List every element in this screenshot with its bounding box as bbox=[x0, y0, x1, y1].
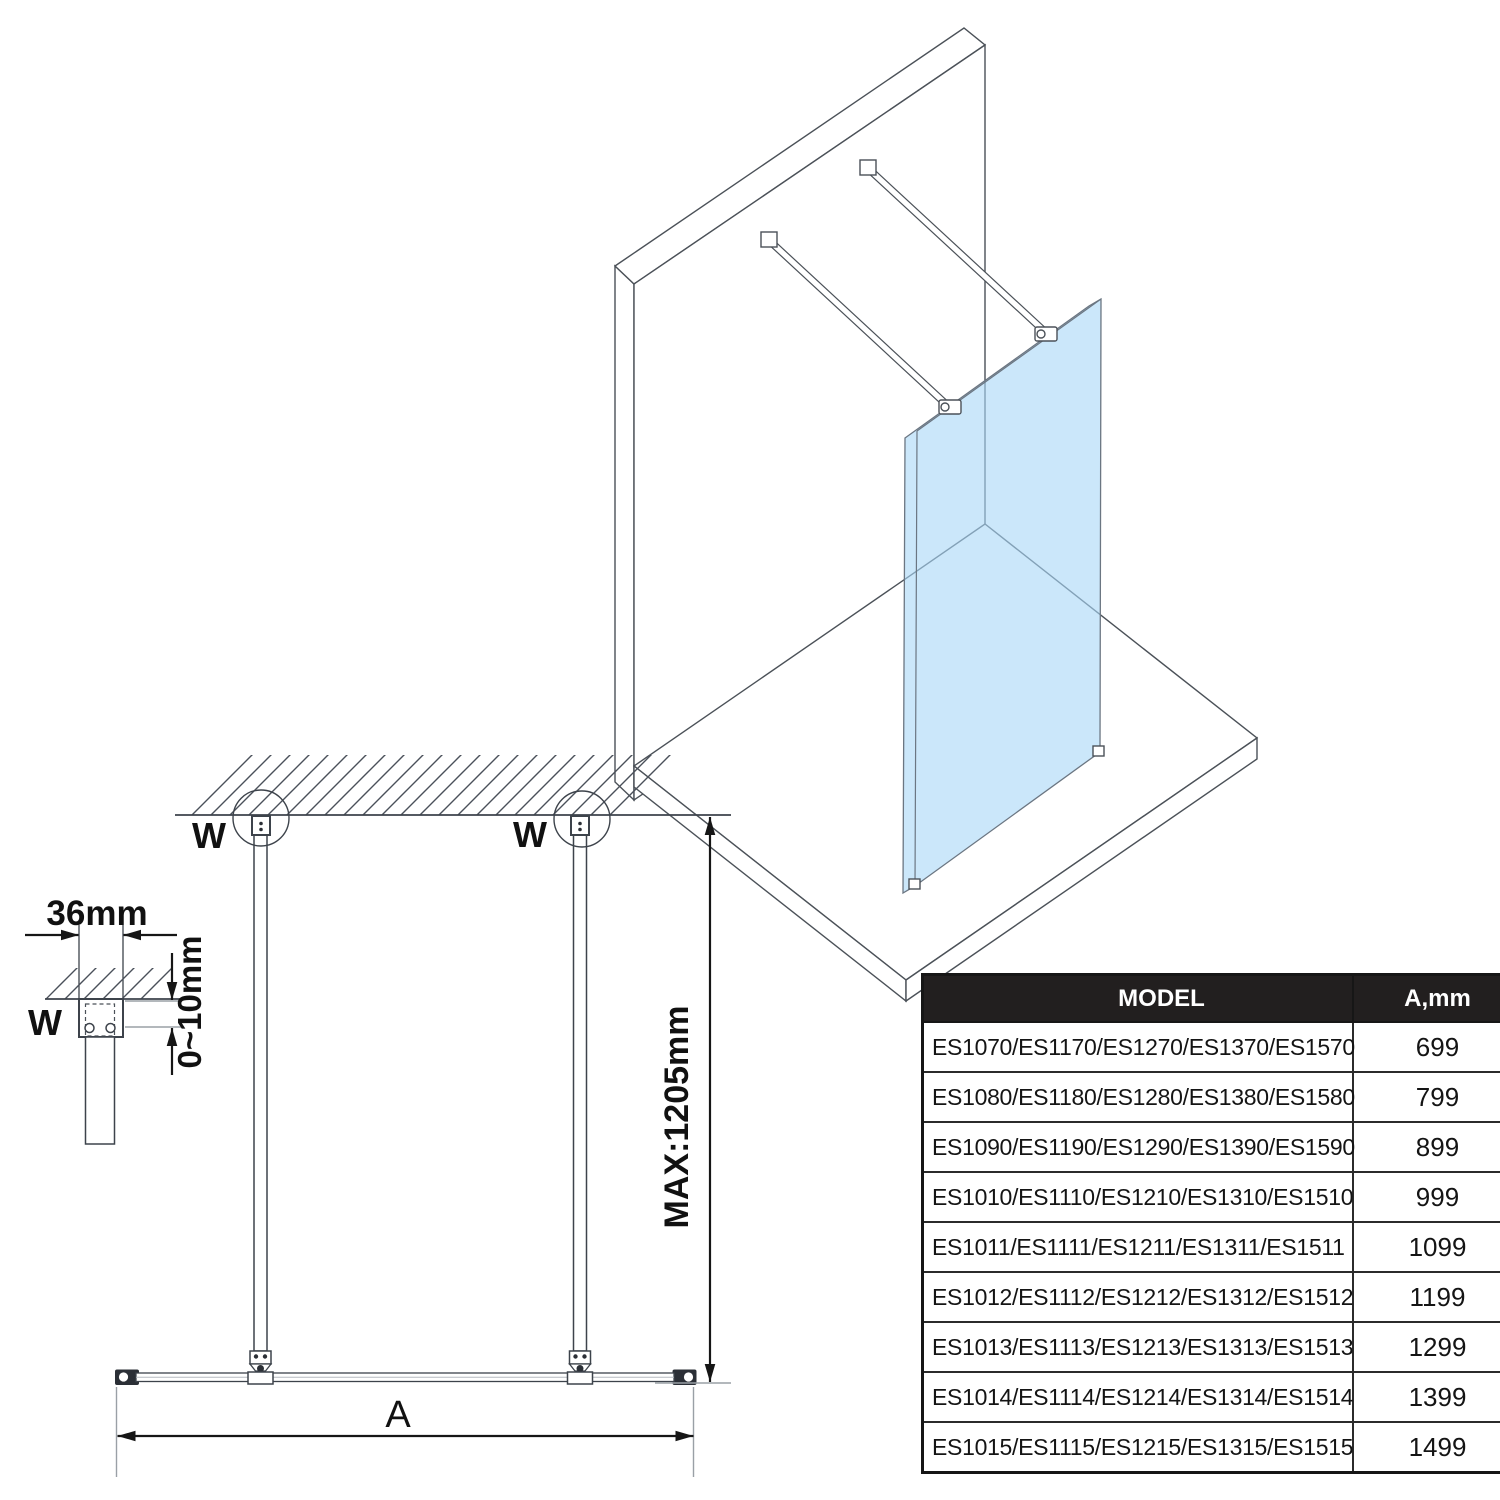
wall-mount-1 bbox=[761, 232, 777, 247]
detail-bracket bbox=[79, 999, 123, 1037]
table-row: ES1012/ES1112/ES1212/ES1312/ES15121199 bbox=[923, 1272, 1500, 1322]
model-cell: ES1010/ES1110/ES1210/ES1310/ES1510 bbox=[923, 1172, 1354, 1222]
shower-screen-spec-sheet: W W bbox=[0, 0, 1500, 1500]
ceiling-bracket bbox=[252, 816, 270, 835]
a-mm-cell: 1499 bbox=[1353, 1422, 1500, 1473]
a-mm-cell: 899 bbox=[1353, 1122, 1500, 1172]
table-row: ES1070/ES1170/ES1270/ES1370/ES1570699 bbox=[923, 1022, 1500, 1072]
connector-body bbox=[570, 1351, 591, 1364]
bracket-screw bbox=[259, 822, 263, 826]
model-cell: ES1013/ES1113/ES1213/ES1313/ES1513 bbox=[923, 1322, 1354, 1372]
model-cell: ES1070/ES1170/ES1270/ES1370/ES1570 bbox=[923, 1022, 1354, 1072]
model-cell: ES1011/ES1111/ES1211/ES1311/ES1511 bbox=[923, 1222, 1354, 1272]
detail-view: 36mm W 0~10mm bbox=[25, 894, 208, 1144]
model-cell: ES1015/ES1115/ES1215/ES1315/ES1515 bbox=[923, 1422, 1354, 1473]
post-bar bbox=[254, 835, 267, 1351]
support-post-left bbox=[252, 816, 270, 1351]
rail-clamp bbox=[568, 1372, 593, 1384]
end-cap-hole-right bbox=[684, 1372, 693, 1381]
detail-screw bbox=[106, 1024, 115, 1033]
glass-clamp-1-knob bbox=[941, 403, 949, 411]
post-connector-left bbox=[248, 1351, 273, 1384]
table-row: ES1013/ES1113/ES1213/ES1313/ES15131299 bbox=[923, 1322, 1500, 1372]
table-row: ES1014/ES1114/ES1214/ES1314/ES15141399 bbox=[923, 1372, 1500, 1422]
table-row: ES1015/ES1115/ES1215/ES1315/ES15151499 bbox=[923, 1422, 1500, 1473]
connector-screw bbox=[573, 1354, 577, 1358]
a-mm-cell: 799 bbox=[1353, 1072, 1500, 1122]
profile-width-label: 36mm bbox=[46, 894, 147, 933]
connector-screw bbox=[263, 1354, 267, 1358]
max-height-dimension: MAX:1205mm bbox=[655, 817, 731, 1383]
spec-table: MODEL A,mm ES1070/ES1170/ES1270/ES1370/E… bbox=[921, 973, 1500, 1474]
table-row: ES1010/ES1110/ES1210/ES1310/ES1510999 bbox=[923, 1172, 1500, 1222]
a-mm-cell: 1299 bbox=[1353, 1322, 1500, 1372]
isometric-view bbox=[615, 28, 1257, 1001]
gap-dimension: 0~10mm bbox=[125, 935, 208, 1075]
ceiling-bracket bbox=[571, 816, 589, 835]
post-bar bbox=[574, 835, 587, 1351]
detail-post bbox=[86, 1037, 115, 1144]
bottom-rail bbox=[115, 1370, 697, 1386]
width-label: A bbox=[385, 1394, 411, 1436]
glass-clamp-2-knob bbox=[1037, 330, 1045, 338]
wall-marker-right: W bbox=[513, 814, 547, 855]
model-cell: ES1080/ES1180/ES1280/ES1380/ES1580 bbox=[923, 1072, 1354, 1122]
bracket-screw bbox=[578, 822, 582, 826]
wall-left-face bbox=[615, 266, 634, 800]
end-cap-hole-left bbox=[119, 1372, 128, 1381]
wall-marker-detail: W bbox=[28, 1002, 62, 1043]
detail-hatch bbox=[45, 968, 180, 999]
width-dimension: A bbox=[117, 1387, 694, 1477]
table-row: ES1090/ES1190/ES1290/ES1390/ES1590899 bbox=[923, 1122, 1500, 1172]
a-mm-cell: 1199 bbox=[1353, 1272, 1500, 1322]
connector-body bbox=[250, 1351, 271, 1364]
support-post-right bbox=[571, 816, 589, 1351]
rail-clamp bbox=[248, 1372, 273, 1384]
a-mm-cell: 1399 bbox=[1353, 1372, 1500, 1422]
post-connector-right bbox=[568, 1351, 593, 1384]
gap-label: 0~10mm bbox=[171, 935, 208, 1068]
table-header-model: MODEL bbox=[923, 975, 1354, 1023]
ceiling-hatch bbox=[175, 755, 672, 815]
bracket-screw bbox=[259, 828, 263, 832]
connector-pivot bbox=[257, 1365, 264, 1372]
wall-marker-left: W bbox=[192, 815, 226, 856]
table-header-a-mm: A,mm bbox=[1353, 975, 1500, 1023]
a-mm-cell: 999 bbox=[1353, 1172, 1500, 1222]
connector-screw bbox=[582, 1354, 586, 1358]
model-cell: ES1090/ES1190/ES1290/ES1390/ES1590 bbox=[923, 1122, 1354, 1172]
a-mm-cell: 1099 bbox=[1353, 1222, 1500, 1272]
model-cell: ES1012/ES1112/ES1212/ES1312/ES1512 bbox=[923, 1272, 1354, 1322]
connector-screw bbox=[254, 1354, 258, 1358]
table-row: ES1011/ES1111/ES1211/ES1311/ES15111099 bbox=[923, 1222, 1500, 1272]
a-mm-cell: 699 bbox=[1353, 1022, 1500, 1072]
model-cell: ES1014/ES1114/ES1214/ES1314/ES1514 bbox=[923, 1372, 1354, 1422]
connector-pivot bbox=[577, 1365, 584, 1372]
table-header-row: MODEL A,mm bbox=[923, 975, 1500, 1023]
wall-mount-2 bbox=[860, 160, 876, 175]
glass-foot-right bbox=[1093, 746, 1104, 756]
front-view: W W bbox=[115, 755, 731, 1477]
table-row: ES1080/ES1180/ES1280/ES1380/ES1580799 bbox=[923, 1072, 1500, 1122]
bracket-screw bbox=[578, 828, 582, 832]
max-height-label: MAX:1205mm bbox=[658, 1006, 696, 1229]
glass-foot-left bbox=[909, 879, 920, 889]
detail-screw bbox=[85, 1024, 94, 1033]
